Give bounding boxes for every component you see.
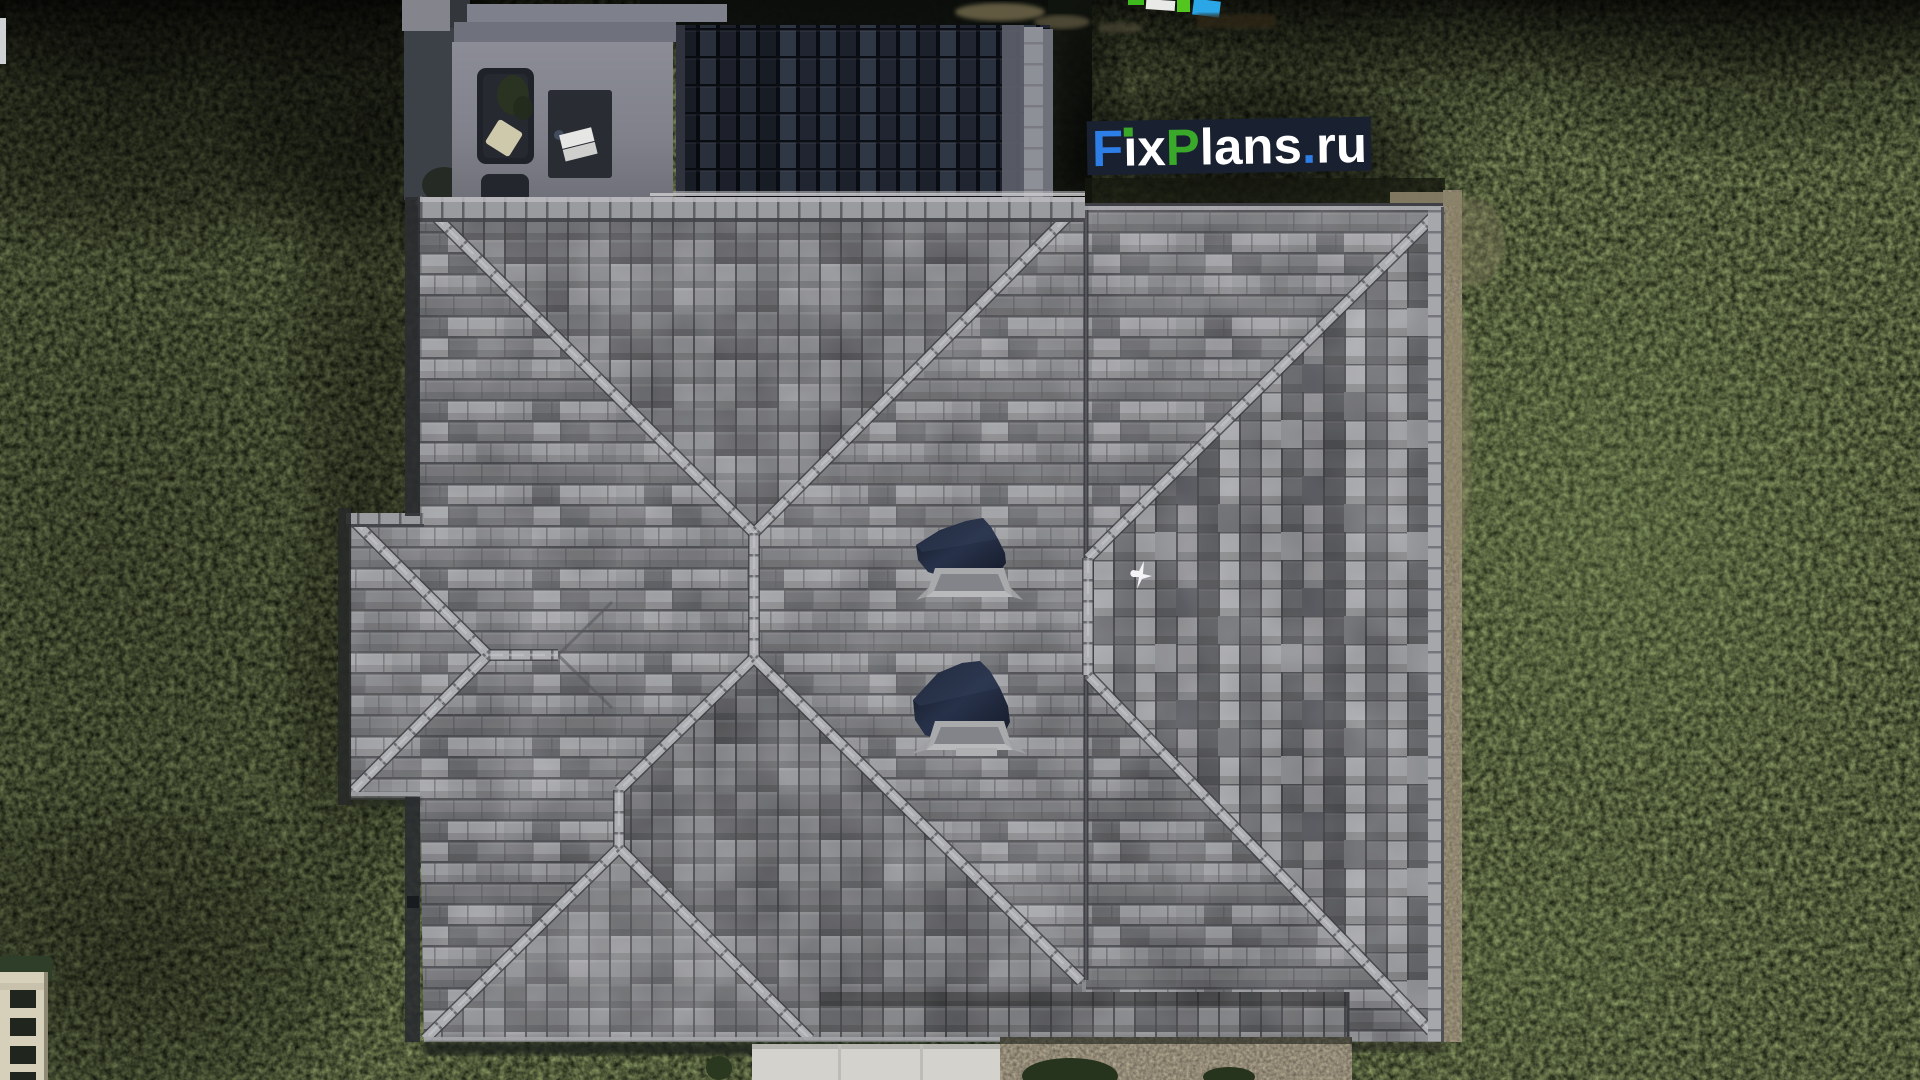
svg-text:FıxPlans.ru: FıxPlans.ru: [1092, 116, 1368, 177]
